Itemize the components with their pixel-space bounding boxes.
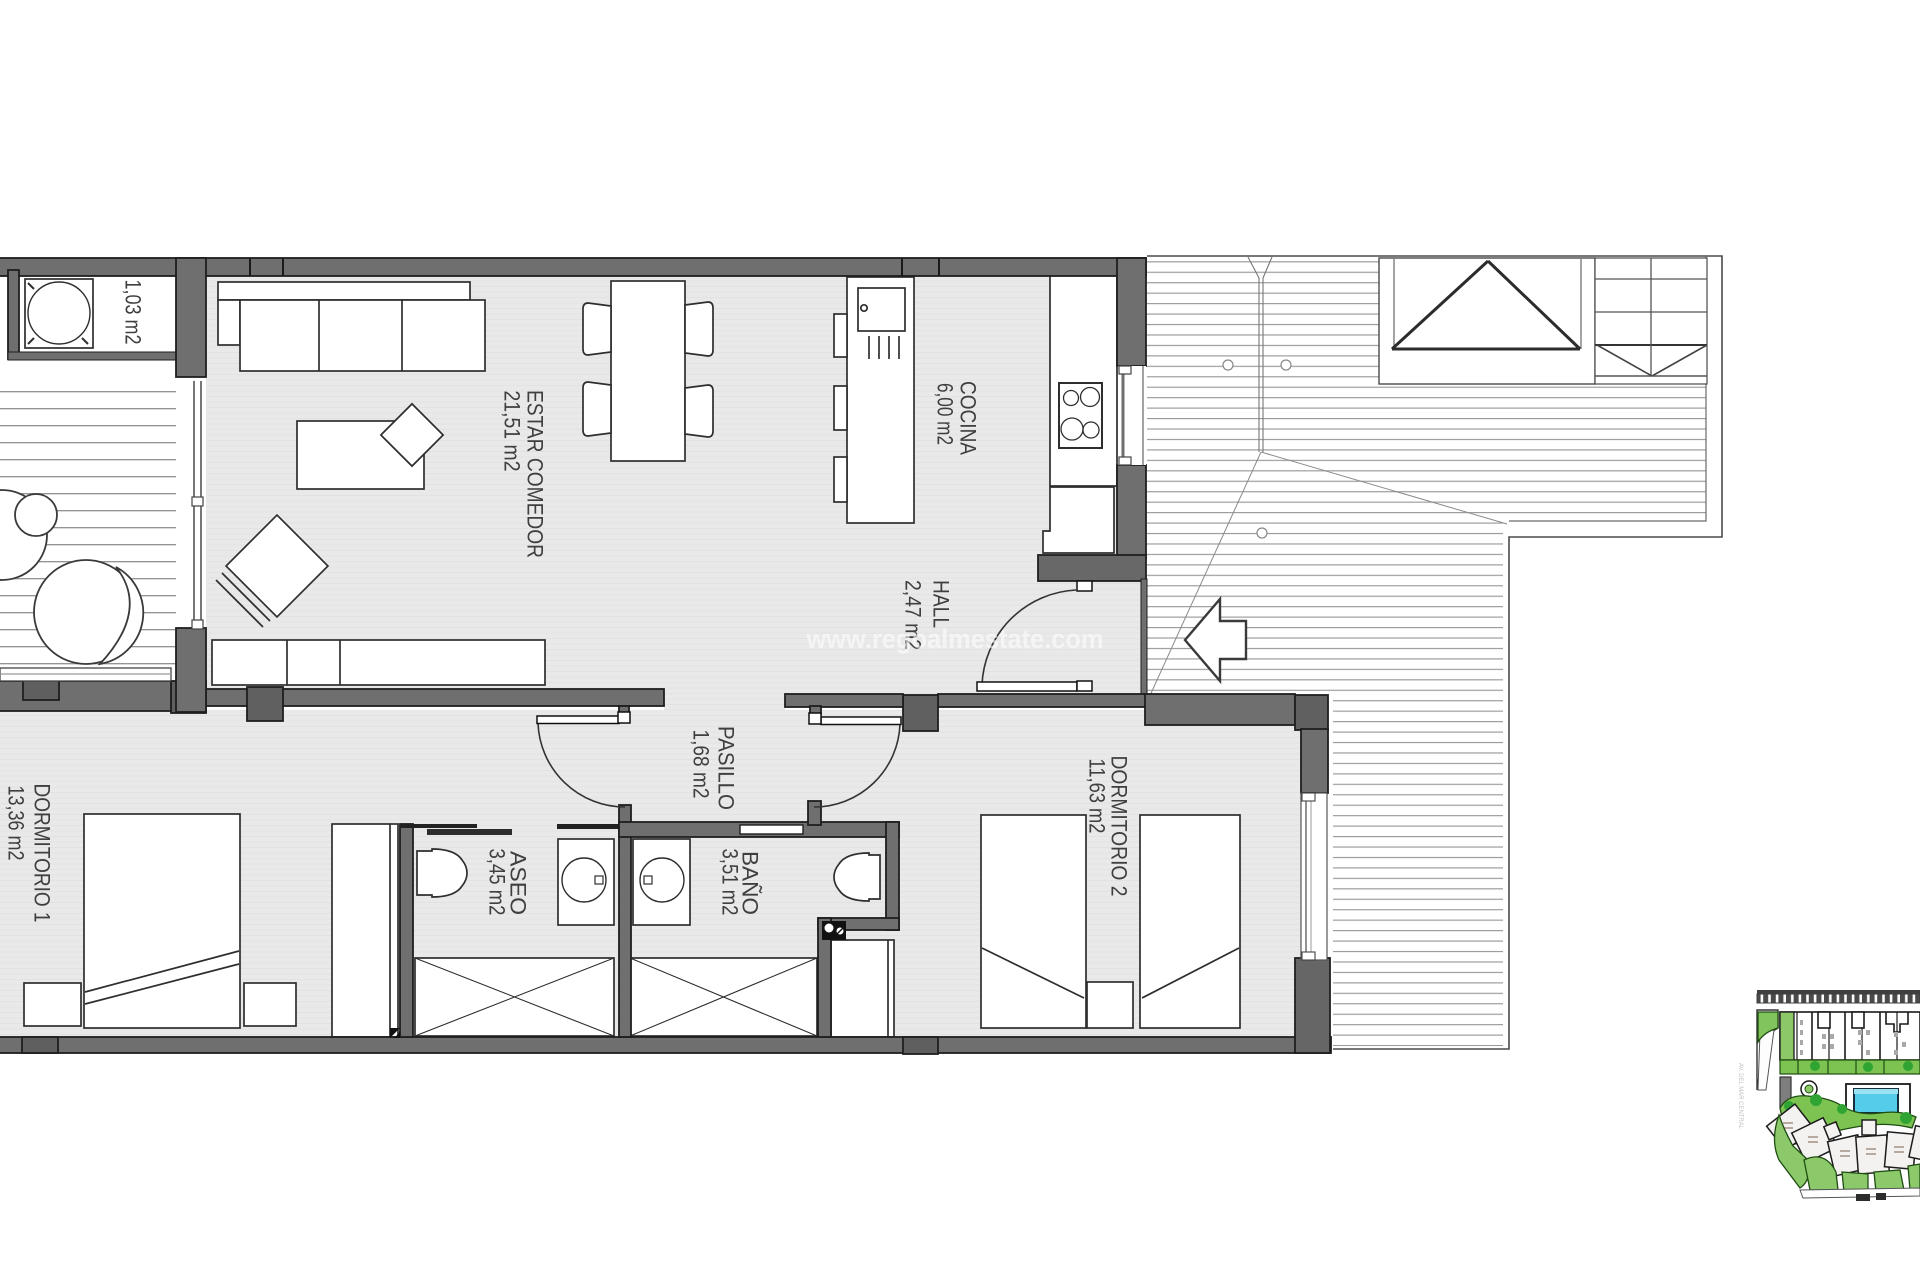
svg-text:13,36 m2: 13,36 m2 [3, 786, 28, 861]
svg-text:3,51 m2: 3,51 m2 [717, 849, 742, 916]
svg-text:HALL: HALL [928, 580, 953, 628]
svg-text:11,63 m2: 11,63 m2 [1084, 759, 1109, 834]
svg-text:1,68 m2: 1,68 m2 [688, 730, 713, 799]
svg-text:ESTAR COMEDOR: ESTAR COMEDOR [522, 390, 547, 558]
svg-text:PASILLO: PASILLO [713, 726, 738, 810]
svg-text:6,00 m2: 6,00 m2 [932, 383, 957, 445]
svg-text:1,03 m2: 1,03 m2 [120, 280, 145, 345]
svg-text:21,51 m2: 21,51 m2 [499, 391, 524, 472]
svg-text:AV. DEL MAR CENTRAL: AV. DEL MAR CENTRAL [1737, 1063, 1743, 1130]
svg-text:3,45 m2: 3,45 m2 [484, 849, 509, 916]
svg-text:www.regoalmestate.com: www.regoalmestate.com [806, 624, 1104, 654]
svg-text:DORMITORIO 1: DORMITORIO 1 [29, 784, 54, 923]
svg-text:COCINA: COCINA [955, 381, 980, 455]
